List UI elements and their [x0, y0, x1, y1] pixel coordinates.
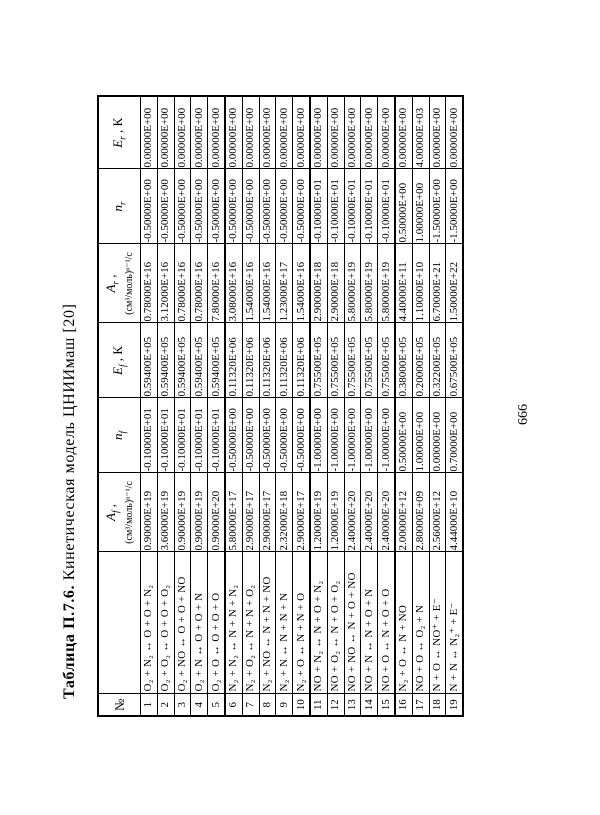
cell-nf: -0.10000E+01	[141, 398, 158, 473]
ef-comma: , К	[110, 346, 125, 364]
cell-er: 0.00000E+00	[395, 96, 412, 169]
table-row: 6N₂ + N₂ ↔ N + N + N₂5.80000E+17-0.50000…	[225, 96, 242, 716]
cell-ar: 1.23000E+17	[276, 244, 293, 323]
af-symbol: A	[103, 513, 118, 521]
table-title-text: Кинетическая модель ЦНИИмаш [20]	[61, 303, 78, 584]
col-header-reaction	[98, 552, 141, 694]
cell-ar: 0.78000E+16	[174, 244, 191, 323]
cell-nf: -0.50000E+00	[225, 398, 242, 473]
cell-reaction: N₂ + N ↔ N + N + N	[276, 552, 293, 694]
cell-nf: -1.00000E+00	[310, 398, 327, 473]
cell-af: 2.90000E+17	[293, 473, 310, 552]
cell-nr: 1.00000E+00	[412, 169, 429, 244]
af-comma: ,	[103, 504, 118, 511]
cell-ef: 0.11320E+06	[293, 323, 310, 398]
table-row: 1O₂ + N₂ ↔ O + O + N₂0.90000E+19-0.10000…	[141, 96, 158, 716]
cell-reaction: N₂ + O ↔ N + N + O	[293, 552, 310, 694]
cell-nr: -0.50000E+00	[157, 169, 174, 244]
ar-unit: (см³/моль)ⁿ⁻¹/с	[124, 252, 135, 315]
header-row: № Af , (см³/моль)ⁿ⁻¹/с nf Ef , К Ar , (с	[98, 96, 141, 716]
cell-reaction: NO + NO ↔ N + O + NO	[344, 552, 361, 694]
cell-nr: -0.50000E+00	[174, 169, 191, 244]
table-row: 10N₂ + O ↔ N + N + O2.90000E+17-0.50000E…	[293, 96, 310, 716]
cell-ef: 0.59400E+05	[174, 323, 191, 398]
cell-no: 4	[191, 694, 208, 716]
cell-er: 0.00000E+00	[191, 96, 208, 169]
cell-ar: 0.78000E+16	[141, 244, 158, 323]
cell-nr: -0.10000E+01	[378, 169, 395, 244]
cell-ar: 5.80000E+19	[344, 244, 361, 323]
cell-ef: 0.75500E+05	[378, 323, 395, 398]
cell-nf: -0.10000E+01	[174, 398, 191, 473]
col-header-no: №	[98, 694, 141, 716]
cell-nf: -0.50000E+00	[242, 398, 259, 473]
table-row: 14NO + N ↔ N + O + N2.40000E+20-1.00000E…	[361, 96, 378, 716]
cell-reaction: NO + O ↔ O₂ + N	[412, 552, 429, 694]
cell-no: 12	[327, 694, 344, 716]
cell-er: 0.00000E+00	[327, 96, 344, 169]
cell-nf: -0.10000E+01	[191, 398, 208, 473]
cell-no: 6	[225, 694, 242, 716]
cell-af: 2.40000E+20	[361, 473, 378, 552]
col-header-er: Er , К	[98, 96, 141, 169]
table-header: № Af , (см³/моль)ⁿ⁻¹/с nf Ef , К Ar , (с	[98, 96, 141, 716]
cell-af: 0.90000E+19	[191, 473, 208, 552]
cell-af: 1.20000E+19	[310, 473, 327, 552]
table-row: 17NO + O ↔ O₂ + N2.80000E+091.00000E+000…	[412, 96, 429, 716]
ar-sub: r	[110, 281, 120, 285]
cell-nf: 0.50000E+00	[395, 398, 412, 473]
cell-af: 2.56000E+12	[429, 473, 446, 552]
cell-er: 4.00000E+03	[412, 96, 429, 169]
rotated-table-block: Таблица П.7.6. Кинетическая модель ЦНИИм…	[97, 97, 465, 717]
cell-nr: -1.50000E+00	[429, 169, 446, 244]
cell-af: 0.90000E+20	[208, 473, 225, 552]
cell-nr: -0.50000E+00	[225, 169, 242, 244]
cell-no: 14	[361, 694, 378, 716]
cell-ef: 0.38000E+05	[395, 323, 412, 398]
cell-er: 0.00000E+00	[293, 96, 310, 169]
cell-ar: 3.12000E+16	[157, 244, 174, 323]
cell-no: 3	[174, 694, 191, 716]
cell-no: 5	[208, 694, 225, 716]
cell-reaction: O₂ + NO ↔ O + O + NO	[174, 552, 191, 694]
cell-nf: 0.70000E+00	[446, 398, 463, 473]
cell-reaction: NO + N ↔ N + O + N	[361, 552, 378, 694]
ar-symbol: A	[103, 285, 118, 293]
nr-symbol: n	[110, 205, 125, 212]
cell-af: 2.90000E+17	[259, 473, 276, 552]
cell-er: 0.00000E+00	[276, 96, 293, 169]
col-header-nr: nr	[98, 169, 141, 244]
cell-af: 0.90000E+19	[174, 473, 191, 552]
cell-er: 0.00000E+00	[141, 96, 158, 169]
cell-ar: 1.54000E+16	[242, 244, 259, 323]
cell-ef: 0.11320E+06	[259, 323, 276, 398]
cell-ef: 0.11320E+06	[276, 323, 293, 398]
cell-er: 0.00000E+00	[174, 96, 191, 169]
table-row: 2O₂ + O₂ ↔ O + O + O₂3.60000E+19-0.10000…	[157, 96, 174, 716]
cell-er: 0.00000E+00	[225, 96, 242, 169]
cell-no: 7	[242, 694, 259, 716]
cell-reaction: N + O ↔ NO⁺ + E⁻	[429, 552, 446, 694]
cell-nr: -0.50000E+00	[208, 169, 225, 244]
cell-er: 0.00000E+00	[310, 96, 327, 169]
cell-er: 0.00000E+00	[344, 96, 361, 169]
cell-af: 2.90000E+17	[242, 473, 259, 552]
table-row: 18N + O ↔ NO⁺ + E⁻2.56000E+120.00000E+00…	[429, 96, 446, 716]
cell-er: 0.00000E+00	[361, 96, 378, 169]
cell-ef: 0.11320E+06	[225, 323, 242, 398]
af-unit: (см³/моль)ⁿ⁻¹/с	[124, 481, 135, 544]
cell-reaction: O₂ + N₂ ↔ O + O + N₂	[141, 552, 158, 694]
cell-reaction: N + N ↔ N₂⁺ + E⁻	[446, 552, 463, 694]
cell-reaction: N₂ + N₂ ↔ N + N + N₂	[225, 552, 242, 694]
table-row: 5O₂ + O ↔ O + O + O0.90000E+20-0.10000E+…	[208, 96, 225, 716]
cell-er: 0.00000E+00	[157, 96, 174, 169]
kinetic-model-table: № Af , (см³/моль)ⁿ⁻¹/с nf Ef , К Ar , (с	[97, 95, 464, 717]
cell-no: 17	[412, 694, 429, 716]
cell-af: 3.60000E+19	[157, 473, 174, 552]
table-row: 4O₂ + N ↔ O + O + N0.90000E+19-0.10000E+…	[191, 96, 208, 716]
cell-nr: -0.50000E+00	[259, 169, 276, 244]
cell-ar: 0.78000E+16	[191, 244, 208, 323]
cell-no: 9	[276, 694, 293, 716]
cell-ef: 0.75500E+05	[361, 323, 378, 398]
cell-reaction: O₂ + O ↔ O + O + O	[208, 552, 225, 694]
col-header-ar: Ar , (см³/моль)ⁿ⁻¹/с	[98, 244, 141, 323]
cell-nf: -0.50000E+00	[259, 398, 276, 473]
cell-reaction: NO + N₂ ↔ N + O + N₂	[310, 552, 327, 694]
table-row: 3O₂ + NO ↔ O + O + NO0.90000E+19-0.10000…	[174, 96, 191, 716]
cell-ef: 0.59400E+05	[208, 323, 225, 398]
cell-ef: 0.67500E+05	[446, 323, 463, 398]
ar-comma: ,	[103, 275, 118, 282]
cell-ar: 3.08000E+16	[225, 244, 242, 323]
cell-nf: -0.50000E+00	[293, 398, 310, 473]
cell-er: 0.00000E+00	[259, 96, 276, 169]
cell-ar: 5.80000E+19	[378, 244, 395, 323]
table-row: 11NO + N₂ ↔ N + O + N₂1.20000E+19-1.0000…	[310, 96, 327, 716]
cell-er: 0.00000E+00	[429, 96, 446, 169]
cell-ef: 0.59400E+05	[157, 323, 174, 398]
cell-nr: -0.10000E+01	[327, 169, 344, 244]
col-header-ef: Ef , К	[98, 323, 141, 398]
cell-no: 8	[259, 694, 276, 716]
cell-nr: -0.10000E+01	[310, 169, 327, 244]
cell-no: 1	[141, 694, 158, 716]
cell-ar: 1.54000E+16	[293, 244, 310, 323]
cell-no: 18	[429, 694, 446, 716]
ef-sub: f	[118, 364, 128, 367]
cell-nf: -1.00000E+00	[327, 398, 344, 473]
table-row: 7N₂ + O₂ ↔ N + N + O₂2.90000E+17-0.50000…	[242, 96, 259, 716]
table-title: Таблица П.7.6. Кинетическая модель ЦНИИм…	[61, 303, 79, 699]
cell-nr: -0.50000E+00	[276, 169, 293, 244]
table-row: 15NO + O ↔ N + O + O2.40000E+20-1.00000E…	[378, 96, 395, 716]
cell-ar: 1.50000E+22	[446, 244, 463, 323]
cell-af: 2.40000E+20	[344, 473, 361, 552]
cell-reaction: NO + O ↔ N + O + O	[378, 552, 395, 694]
cell-af: 2.80000E+09	[412, 473, 429, 552]
table-row: 16N₂ + O ↔ N + NO2.00000E+120.50000E+000…	[395, 96, 412, 716]
cell-no: 10	[293, 694, 310, 716]
cell-no: 2	[157, 694, 174, 716]
table-title-number: Таблица П.7.6.	[61, 585, 78, 699]
cell-af: 1.20000E+19	[327, 473, 344, 552]
cell-no: 16	[395, 694, 412, 716]
table-row: 19N + N ↔ N₂⁺ + E⁻4.44000E+100.70000E+00…	[446, 96, 463, 716]
cell-ef: 0.11320E+06	[242, 323, 259, 398]
er-sub: r	[118, 136, 128, 140]
cell-nf: -1.00000E+00	[378, 398, 395, 473]
cell-reaction: O₂ + N ↔ O + O + N	[191, 552, 208, 694]
cell-no: 13	[344, 694, 361, 716]
cell-no: 11	[310, 694, 327, 716]
cell-ar: 2.90000E+18	[310, 244, 327, 323]
nr-sub: r	[118, 202, 128, 206]
reaction-rows: 1O₂ + N₂ ↔ O + O + N₂0.90000E+19-0.10000…	[141, 96, 464, 716]
cell-af: 2.40000E+20	[378, 473, 395, 552]
cell-reaction: O₂ + O₂ ↔ O + O + O₂	[157, 552, 174, 694]
cell-nf: 0.00000E+00	[429, 398, 446, 473]
page-number: 666	[516, 404, 532, 425]
cell-ar: 7.80000E+16	[208, 244, 225, 323]
cell-nr: -0.50000E+00	[242, 169, 259, 244]
er-symbol: E	[110, 140, 125, 148]
cell-no: 15	[378, 694, 395, 716]
cell-nr: -0.50000E+00	[141, 169, 158, 244]
cell-af: 5.80000E+17	[225, 473, 242, 552]
cell-nr: -1.50000E+00	[446, 169, 463, 244]
cell-af: 2.00000E+12	[395, 473, 412, 552]
table-row: 9N₂ + N ↔ N + N + N2.32000E+18-0.50000E+…	[276, 96, 293, 716]
cell-nf: -1.00000E+00	[344, 398, 361, 473]
cell-ar: 4.40000E+11	[395, 244, 412, 323]
cell-nr: -0.10000E+01	[361, 169, 378, 244]
cell-af: 0.90000E+19	[141, 473, 158, 552]
nf-sub: f	[118, 431, 128, 434]
table-row: 12NO + O₂ ↔ N + O + O₂1.20000E+19-1.0000…	[327, 96, 344, 716]
cell-nf: -0.10000E+01	[157, 398, 174, 473]
col-header-nf: nf	[98, 398, 141, 473]
cell-ef: 0.75500E+05	[310, 323, 327, 398]
cell-reaction: N₂ + O₂ ↔ N + N + O₂	[242, 552, 259, 694]
cell-ar: 5.80000E+19	[361, 244, 378, 323]
cell-af: 2.32000E+18	[276, 473, 293, 552]
cell-nr: -0.50000E+00	[191, 169, 208, 244]
cell-reaction: NO + O₂ ↔ N + O + O₂	[327, 552, 344, 694]
cell-ar: 2.90000E+18	[327, 244, 344, 323]
cell-af: 4.44000E+10	[446, 473, 463, 552]
cell-ar: 6.70000E+21	[429, 244, 446, 323]
cell-ef: 0.75500E+05	[344, 323, 361, 398]
cell-reaction: N₂ + O ↔ N + NO	[395, 552, 412, 694]
cell-nr: 0.50000E+00	[395, 169, 412, 244]
ef-symbol: E	[110, 367, 125, 375]
document-page: Таблица П.7.6. Кинетическая модель ЦНИИм…	[0, 0, 600, 815]
cell-nr: -0.10000E+01	[344, 169, 361, 244]
table-row: 13NO + NO ↔ N + O + NO2.40000E+20-1.0000…	[344, 96, 361, 716]
cell-nf: -0.50000E+00	[276, 398, 293, 473]
cell-no: 19	[446, 694, 463, 716]
cell-nr: -0.50000E+00	[293, 169, 310, 244]
cell-nf: -0.10000E+01	[208, 398, 225, 473]
cell-er: 0.00000E+00	[208, 96, 225, 169]
table-row: 8N₂ + NO ↔ N + N + NO2.90000E+17-0.50000…	[259, 96, 276, 716]
cell-er: 0.00000E+00	[378, 96, 395, 169]
cell-ef: 0.59400E+05	[191, 323, 208, 398]
cell-ef: 0.32200E+05	[429, 323, 446, 398]
cell-ef: 0.20000E+05	[412, 323, 429, 398]
col-header-af: Af , (см³/моль)ⁿ⁻¹/с	[98, 473, 141, 552]
cell-ar: 1.10000E+10	[412, 244, 429, 323]
er-comma: , К	[110, 118, 125, 136]
cell-ef: 0.75500E+05	[327, 323, 344, 398]
cell-ar: 1.54000E+16	[259, 244, 276, 323]
cell-er: 0.00000E+00	[242, 96, 259, 169]
cell-ef: 0.59400E+05	[141, 323, 158, 398]
nf-symbol: n	[110, 434, 125, 441]
cell-nf: -1.00000E+00	[361, 398, 378, 473]
cell-reaction: N₂ + NO ↔ N + N + NO	[259, 552, 276, 694]
cell-er: 0.00000E+00	[446, 96, 463, 169]
cell-nf: 1.00000E+00	[412, 398, 429, 473]
